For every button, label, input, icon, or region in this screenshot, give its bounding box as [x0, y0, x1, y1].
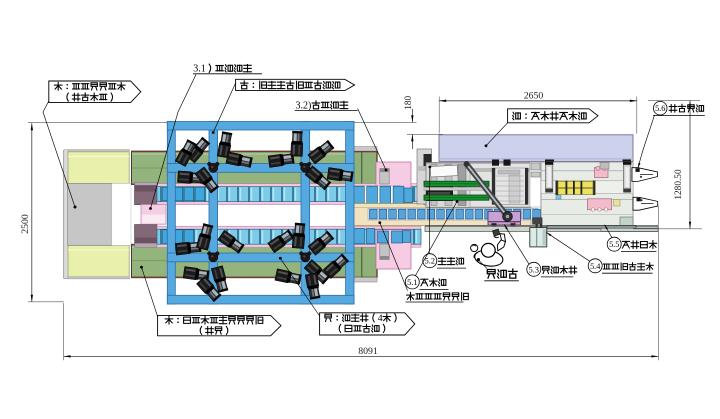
svg-text:3.2): 3.2)	[296, 100, 312, 111]
svg-text:5.6: 5.6	[655, 104, 665, 113]
svg-text:5.5: 5.5	[609, 240, 619, 249]
svg-text:4: 4	[378, 313, 383, 324]
svg-text:2500: 2500	[20, 214, 31, 234]
svg-text:5.3: 5.3	[529, 265, 539, 274]
svg-text:3.1: 3.1	[193, 64, 206, 75]
svg-text:1280.50: 1280.50	[674, 169, 684, 200]
svg-text:2650: 2650	[524, 91, 544, 102]
svg-text:180: 180	[404, 95, 414, 109]
svg-text:5.4: 5.4	[590, 262, 600, 271]
svg-text:5.1: 5.1	[407, 278, 417, 287]
svg-text:8091: 8091	[358, 346, 378, 357]
svg-text:5.2: 5.2	[425, 257, 435, 266]
